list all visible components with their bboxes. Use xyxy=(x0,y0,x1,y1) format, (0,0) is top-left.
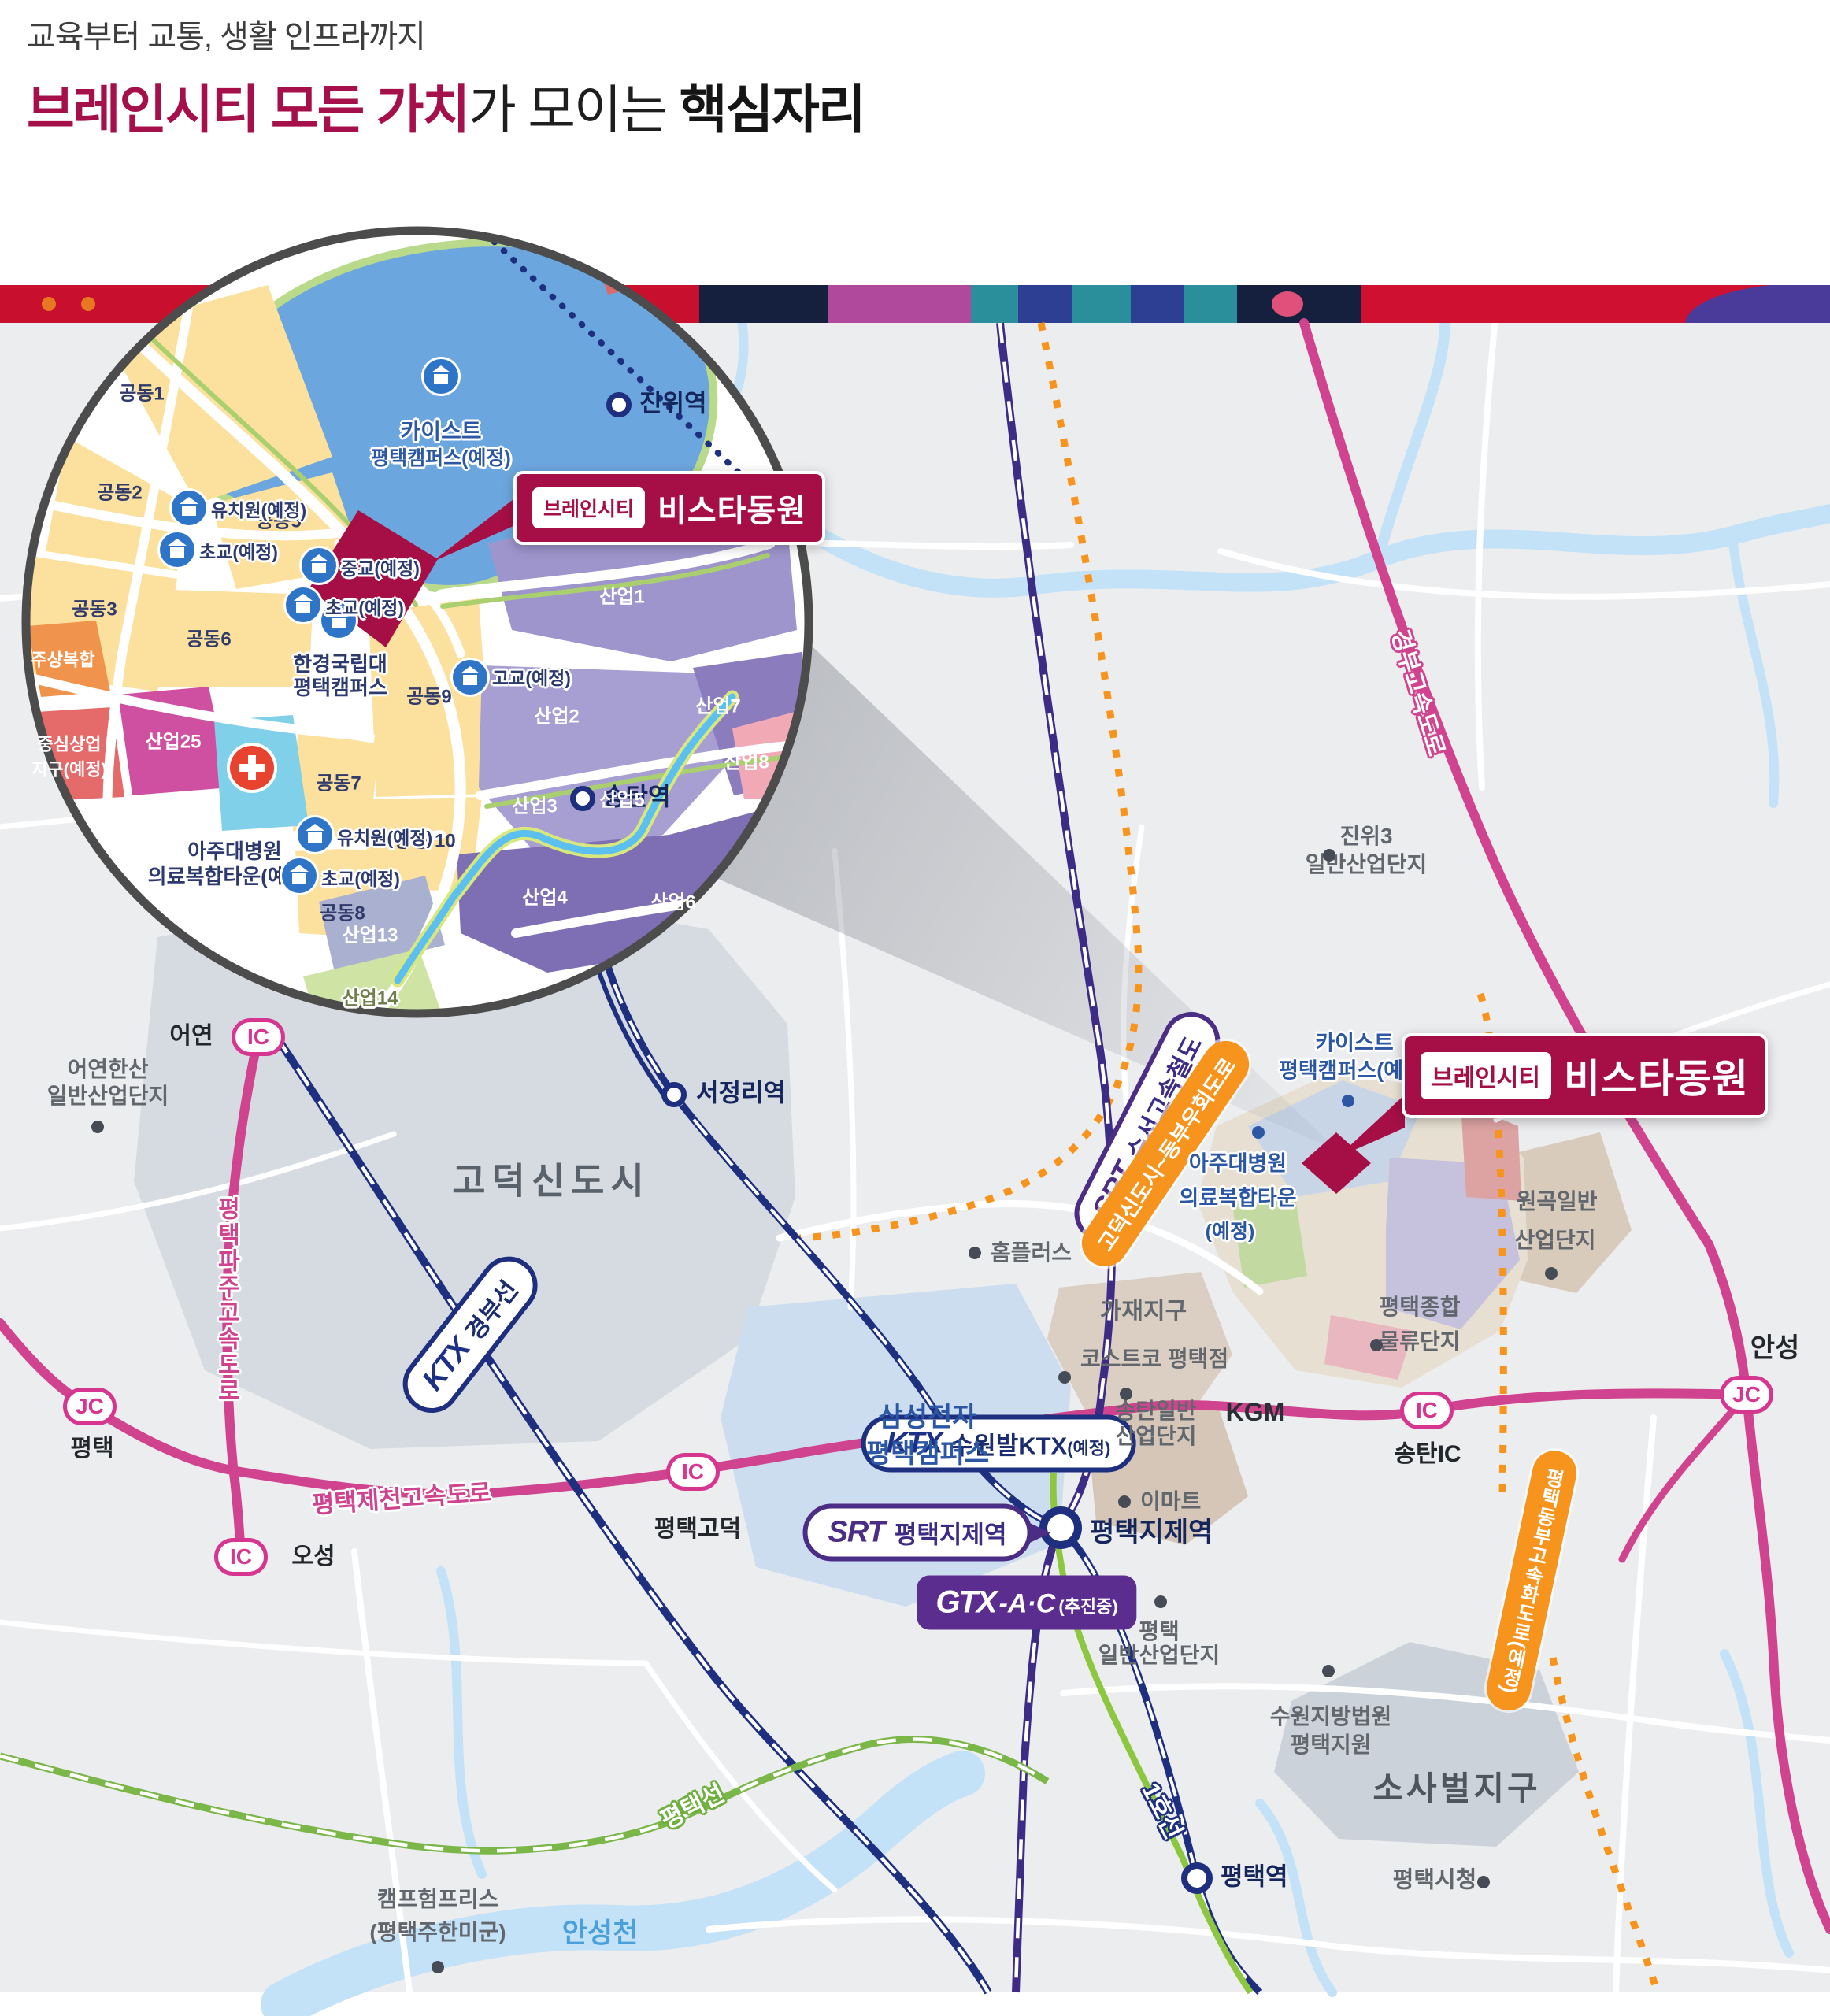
inset-block-s25: 산업25 xyxy=(146,732,202,751)
jinwi3-line1: 진위3 xyxy=(1339,825,1392,848)
station-seojeongri xyxy=(661,1082,687,1107)
songtan-ind-dot xyxy=(1120,1388,1132,1400)
inset-high-label: 고교(예정) xyxy=(492,669,571,687)
kaist-map-line1: 카이스트 xyxy=(1315,1032,1393,1055)
braincity-label-inset: 브레인시티 비스타동원 xyxy=(513,471,825,545)
emart-label: 이마트 xyxy=(1140,1490,1201,1514)
wongok-dot xyxy=(1545,1267,1558,1280)
school-icon xyxy=(160,532,194,567)
school-icon xyxy=(282,858,317,893)
ajou-map-line3: (예정) xyxy=(1206,1221,1255,1243)
wongok-line1: 원곡일반 xyxy=(1516,1190,1597,1214)
inset-block-s6: 산업6 xyxy=(650,892,696,912)
inset-block-g2: 공동2 xyxy=(97,483,143,502)
ajou-map-line2: 의료복합타운 xyxy=(1179,1188,1296,1210)
camp-line2: (평택주한미군) xyxy=(369,1921,506,1944)
camp-dot xyxy=(432,1961,444,1973)
brand-name: 비스타동원 xyxy=(1564,1047,1749,1104)
inset-block-s3: 산업3 xyxy=(512,796,558,816)
station-jinwi xyxy=(606,392,632,417)
station-pyeongtaek-label: 평택역 xyxy=(1221,1865,1288,1891)
school-icon xyxy=(286,587,320,622)
srt-jije-pointer xyxy=(1027,1521,1050,1543)
jc-pt-name: 평택 xyxy=(70,1436,113,1462)
inset-elem2-label: 초교(예정) xyxy=(325,598,404,617)
cityhall-dot xyxy=(1477,1876,1490,1888)
inset-block-g7: 공동7 xyxy=(316,773,361,793)
inset-block-g3: 공동3 xyxy=(72,599,117,619)
inset-red-block-top xyxy=(591,227,687,295)
gajae-label: 가재지구 xyxy=(1100,1299,1187,1325)
inset-elem3-label: 초교(예정) xyxy=(321,869,400,888)
station-jije-label: 평택지제역 xyxy=(1090,1518,1213,1547)
inset-block-g8: 공동8 xyxy=(320,903,365,923)
inset-block-s4: 산업4 xyxy=(522,888,568,907)
inset-block-s7: 산업7 xyxy=(695,696,741,716)
brand-tag: 브레인시티 xyxy=(532,487,645,528)
kgm-label: KGM xyxy=(1226,1399,1285,1426)
jc-anseong-badge: JC xyxy=(1720,1376,1773,1414)
ic-eoyeon-badge: IC xyxy=(232,1018,285,1056)
jinwi3-dot xyxy=(1323,849,1335,862)
station-songtan xyxy=(570,786,595,811)
homeplus-dot xyxy=(969,1247,981,1259)
inset-block-commercial2: 지구(예정) xyxy=(31,760,107,778)
brand-tag: 브레인시티 xyxy=(1421,1052,1551,1099)
eoyeonhansan-dot xyxy=(91,1121,104,1133)
camp-line1: 캠프험프리스 xyxy=(377,1888,499,1911)
school-icon xyxy=(453,660,487,695)
station-seojeongri-label: 서정리역 xyxy=(696,1081,786,1107)
emart-dot xyxy=(1118,1495,1131,1508)
school-icon xyxy=(172,491,206,525)
inset-block-s5: 산업5 xyxy=(599,790,645,810)
eoyeonhansan-line2: 일반산업단지 xyxy=(47,1084,169,1108)
pt-ind-dot xyxy=(1154,1595,1167,1608)
gtx-suffix: (추진중) xyxy=(1058,1593,1117,1618)
inset-elem1-label: 초교(예정) xyxy=(199,543,278,561)
songtan-ind-line1: 송탄일반 xyxy=(1115,1399,1196,1423)
ktx-suwon-suffix: (예정) xyxy=(1067,1439,1110,1458)
station-jinwi-label: 진위역 xyxy=(639,391,707,417)
ajou-map-line1: 아주대병원 xyxy=(1189,1153,1287,1176)
gtx-pill: GTX-A·C(추진중) xyxy=(917,1576,1136,1630)
logistics-line2: 물류단지 xyxy=(1379,1330,1460,1354)
sosabeol-label: 소사벌지구 xyxy=(1372,1772,1540,1807)
ic-godeok-badge: IC xyxy=(666,1453,720,1491)
eoyeonhansan-line1: 어연한산 xyxy=(67,1058,148,1081)
district-godeok: 고덕신도시 xyxy=(452,1162,650,1201)
anseongcheon-label: 안성천 xyxy=(562,1918,639,1947)
inset-hankyong-line1: 한경국립대 xyxy=(293,654,387,676)
srt-logo: SRT xyxy=(828,1516,885,1550)
jc-pt-badge: JC xyxy=(63,1388,117,1425)
logistics-dot xyxy=(1370,1339,1383,1351)
brand-name: 비스타동원 xyxy=(658,485,806,531)
kaist-map-dot xyxy=(1342,1095,1354,1107)
school-icon xyxy=(298,817,332,852)
school-icon xyxy=(424,359,458,394)
hospital-icon xyxy=(230,746,274,790)
inset-block-s2: 산업2 xyxy=(534,706,580,726)
srt-jije-pill: SRT 평택지제역 xyxy=(803,1504,1032,1562)
costco-dot xyxy=(1058,1371,1071,1384)
ic-oseong-name: 오성 xyxy=(291,1544,335,1569)
braincity-label-main: 브레인시티 비스타동원 xyxy=(1402,1033,1768,1118)
pt-ind-line2: 일반산업단지 xyxy=(1098,1644,1221,1667)
pt-ind-line1: 평택 xyxy=(1139,1620,1180,1644)
ic-eoyeon-name: 어연 xyxy=(169,1024,213,1049)
inset-block-s13: 산업13 xyxy=(343,925,398,945)
inset-kinder1-label: 유치원(예정) xyxy=(211,501,306,520)
ic-oseong-badge: IC xyxy=(214,1538,268,1576)
court-dot xyxy=(1322,1665,1335,1677)
ptpaju-road-label: 평택파주고속도로 xyxy=(213,1196,239,1404)
ic-godeok-name: 평택고덕 xyxy=(654,1517,741,1542)
map-canvas xyxy=(0,0,1830,2016)
inset-kinder2-label: 유치원(예정) xyxy=(337,828,432,847)
logistics-line1: 평택종합 xyxy=(1379,1295,1460,1319)
inset-kaist-line2: 평택캠퍼스(예정) xyxy=(371,448,511,469)
srt-jije-label: 평택지제역 xyxy=(895,1515,1007,1551)
infographic-page: 교육부터 교통, 생활 인프라까지 브레인시티 모든 가치가 모이는 핵심자리 xyxy=(0,0,1830,2016)
ic-songtan-name: 송탄IC xyxy=(1394,1442,1461,1467)
inset-block-commercial1: 중심상업 xyxy=(38,735,102,753)
court-line2: 평택지원 xyxy=(1290,1733,1371,1757)
jc-anseong-name: 안성 xyxy=(1750,1334,1800,1362)
inset-block-s14: 산업14 xyxy=(343,988,398,1008)
school-icon xyxy=(302,548,336,583)
gtx-line: -A·C xyxy=(999,1589,1056,1620)
inset-block-g1: 공동1 xyxy=(119,384,165,403)
inset-hankyong-line2: 평택캠퍼스 xyxy=(293,677,387,699)
station-pyeongtaek xyxy=(1181,1862,1213,1894)
ic-songtan-badge: IC xyxy=(1400,1392,1454,1429)
inset-block-g9: 공동9 xyxy=(406,687,452,706)
inset-block-jusang: 주상복합 xyxy=(31,650,95,669)
costco-label: 코스트코 평택점 xyxy=(1080,1347,1228,1371)
inset-block-g6: 공동6 xyxy=(186,629,232,649)
inset-middle-label: 중교(예정) xyxy=(341,559,420,578)
samsung-line2: 평택캠퍼스 xyxy=(866,1440,989,1468)
ajou-map-dot xyxy=(1252,1126,1265,1139)
inset-block-s1: 산업1 xyxy=(599,587,645,606)
inset-kaist-line1: 카이스트 xyxy=(400,420,481,443)
inset-block-s8: 산업8 xyxy=(724,752,769,772)
songtan-ind-line2: 산업단지 xyxy=(1115,1425,1196,1448)
wongok-line2: 산업단지 xyxy=(1514,1228,1595,1252)
court-line1: 수원지방법원 xyxy=(1270,1705,1392,1729)
homeplus-label: 홈플러스 xyxy=(991,1241,1072,1265)
inset-ajou-line1: 아주대병원 xyxy=(187,841,282,863)
samsung-line1: 삼성전자 xyxy=(878,1403,976,1432)
gtx-logo: GTX xyxy=(935,1585,995,1621)
cityhall-label: 평택시청 xyxy=(1393,1869,1477,1893)
